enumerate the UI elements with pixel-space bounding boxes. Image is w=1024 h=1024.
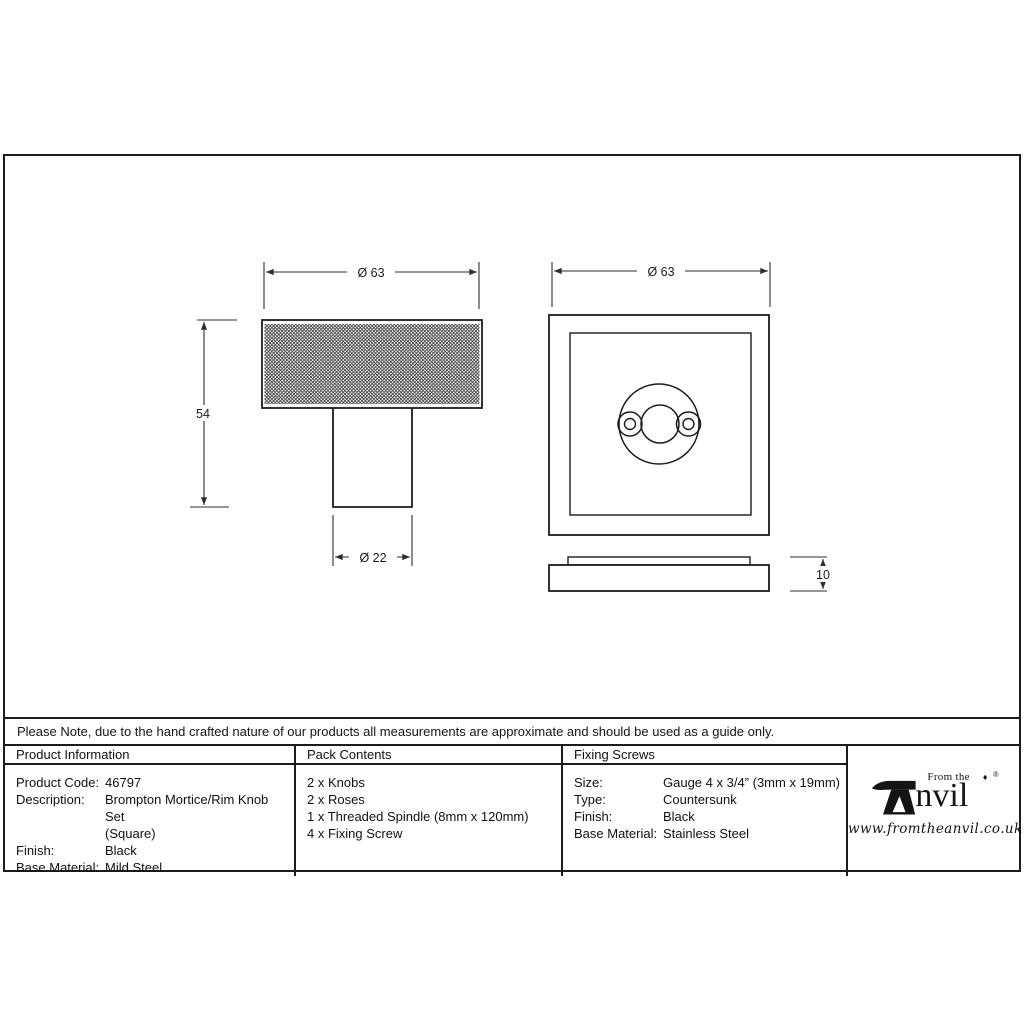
size-label: Size:	[574, 774, 663, 791]
product-information-column: Product Information Product Code: 46797 …	[5, 746, 294, 876]
note-bar: Please Note, due to the hand crafted nat…	[5, 717, 1019, 746]
type-value: Countersunk	[663, 791, 840, 808]
pack-contents-header: Pack Contents	[296, 746, 561, 765]
product-information-body: Product Code: 46797 Description: Brompto…	[5, 765, 294, 876]
type-row: Type: Countersunk	[574, 791, 840, 808]
rose-thickness-dim-label: 10	[816, 568, 830, 582]
knob-stem-outline	[333, 408, 412, 507]
base-material-label: Base Material:	[16, 859, 105, 876]
description-label: Description:	[16, 791, 105, 842]
spec-sheet-border-box: Ø 63 54 Ø 2	[3, 154, 1021, 872]
spec-sheet-page: Ø 63 54 Ø 2	[0, 0, 1024, 1024]
type-label: Type:	[574, 791, 663, 808]
rose-profile-base	[549, 565, 769, 591]
brand-logo-cell: From the ♦ ® nvil www.fromtheanvil.co.uk	[846, 746, 1023, 876]
technical-drawing-svg: Ø 63 54 Ø 2	[5, 156, 1019, 717]
rose-inner-square	[570, 333, 751, 515]
screws-finish-label: Finish:	[574, 808, 663, 825]
finish-label: Finish:	[16, 842, 105, 859]
pack-item: 1 x Threaded Spindle (8mm x 120mm)	[307, 808, 555, 825]
knob-height-dim-label: 54	[196, 407, 210, 421]
finish-value: Black	[105, 842, 288, 859]
pack-contents-body: 2 x Knobs 2 x Roses 1 x Threaded Spindle…	[296, 765, 561, 876]
fixing-screws-column: Fixing Screws Size: Gauge 4 x 3/4” (3mm …	[561, 746, 846, 876]
screws-base-material-label: Base Material:	[574, 825, 663, 842]
diamond-icon: ♦	[983, 772, 988, 782]
base-material-row: Base Material: Mild Steel	[16, 859, 288, 876]
finish-row: Finish: Black	[16, 842, 288, 859]
rose-front-view: Ø 63	[549, 262, 836, 591]
registered-mark: ®	[993, 770, 999, 779]
screws-finish-row: Finish: Black	[574, 808, 840, 825]
product-code-value: 46797	[105, 774, 288, 791]
size-row: Size: Gauge 4 x 3/4” (3mm x 19mm)	[574, 774, 840, 791]
anvil-icon	[871, 775, 917, 819]
technical-drawing-area: Ø 63 54 Ø 2	[5, 156, 1019, 717]
size-value: Gauge 4 x 3/4” (3mm x 19mm)	[663, 774, 840, 791]
fixing-screws-body: Size: Gauge 4 x 3/4” (3mm x 19mm) Type: …	[563, 765, 846, 876]
description-row: Description: Brompton Mortice/Rim Knob S…	[16, 791, 288, 842]
product-code-label: Product Code:	[16, 774, 105, 791]
spec-table: Product Information Product Code: 46797 …	[5, 746, 1019, 876]
logo-website: www.fromtheanvil.co.uk	[848, 821, 1023, 837]
pack-item: 4 x Fixing Screw	[307, 825, 555, 842]
rose-width-dim-label: Ø 63	[647, 265, 674, 279]
description-value: Brompton Mortice/Rim Knob Set (Square)	[105, 791, 288, 842]
base-material-value: Mild Steel	[105, 859, 288, 876]
knurl-texture	[265, 324, 480, 404]
pack-contents-column: Pack Contents 2 x Knobs 2 x Roses 1 x Th…	[294, 746, 561, 876]
note-text: Please Note, due to the hand crafted nat…	[17, 724, 774, 739]
from-the-anvil-logo: From the ♦ ® nvil	[871, 771, 999, 819]
screws-finish-value: Black	[663, 808, 840, 825]
pack-item: 2 x Knobs	[307, 774, 555, 791]
knob-side-view: Ø 63 54 Ø 2	[190, 262, 482, 566]
knob-width-dim-label: Ø 63	[357, 266, 384, 280]
product-information-header: Product Information	[5, 746, 294, 765]
screws-base-material-value: Stainless Steel	[663, 825, 840, 842]
stem-width-dim-label: Ø 22	[359, 551, 386, 565]
fixing-screws-header: Fixing Screws	[563, 746, 846, 765]
screws-base-material-row: Base Material: Stainless Steel	[574, 825, 840, 842]
pack-item: 2 x Roses	[307, 791, 555, 808]
logo-wordmark: nvil	[915, 782, 999, 810]
product-code-row: Product Code: 46797	[16, 774, 288, 791]
rose-profile-step	[568, 557, 750, 565]
